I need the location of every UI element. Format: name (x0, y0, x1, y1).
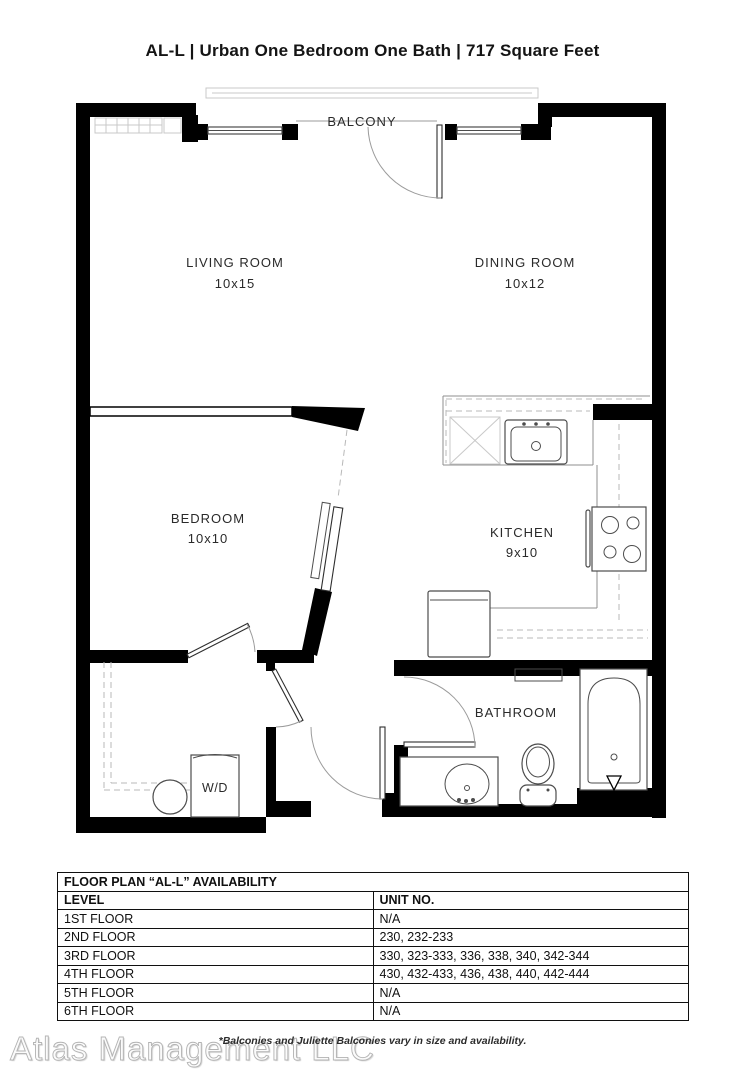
availability-table: FLOOR PLAN “AL-L” AVAILABILITY LEVEL UNI… (57, 872, 689, 1021)
svg-text:DINING ROOM: DINING ROOM (475, 255, 576, 270)
level-cell: 6TH FLOOR (58, 1002, 374, 1021)
table-row: 4TH FLOOR 430, 432-433, 436, 438, 440, 4… (58, 965, 689, 984)
table-row: 6TH FLOOR N/A (58, 1002, 689, 1021)
units-cell: 230, 232-233 (373, 928, 689, 947)
units-cell: 330, 323-333, 336, 338, 340, 342-344 (373, 947, 689, 966)
units-cell: 430, 432-433, 436, 438, 440, 442-444 (373, 965, 689, 984)
unit-header: UNIT NO. (373, 891, 689, 910)
level-cell: 1ST FLOOR (58, 910, 374, 929)
table-row: 3RD FLOOR 330, 323-333, 336, 338, 340, 3… (58, 947, 689, 966)
bathtub (580, 669, 647, 790)
balcony-railing (206, 88, 538, 98)
table-row: 1ST FLOOR N/A (58, 910, 689, 929)
units-cell: N/A (373, 984, 689, 1003)
pony-wall (90, 407, 292, 416)
svg-text:KITCHEN: KITCHEN (490, 525, 554, 540)
level-cell: 4TH FLOOR (58, 965, 374, 984)
baseboard-heater (95, 118, 181, 133)
table-row: 2ND FLOOR 230, 232-233 (58, 928, 689, 947)
flyer-page: AL-L | Urban One Bedroom One Bath | 717 … (0, 0, 745, 1080)
balcony-door (296, 121, 442, 198)
table-title: FLOOR PLAN “AL-L” AVAILABILITY (58, 873, 689, 892)
balcony-window-right (457, 127, 521, 134)
floor-plan: W/D (0, 0, 745, 860)
table-row: 5TH FLOOR N/A (58, 984, 689, 1003)
level-cell: 3RD FLOOR (58, 947, 374, 966)
level-cell: 5TH FLOOR (58, 984, 374, 1003)
toilet (520, 744, 556, 806)
svg-text:LIVING ROOM: LIVING ROOM (186, 255, 284, 270)
bathroom-door (404, 677, 475, 748)
disclaimer-note: *Balconies and Juliette Balconies vary i… (0, 1035, 745, 1047)
walls (76, 103, 666, 833)
refrigerator (428, 591, 490, 657)
svg-text:10x10: 10x10 (188, 531, 228, 546)
bedroom-door (187, 623, 255, 657)
bedroom-label: BEDROOM 10x10 (171, 511, 245, 546)
balcony-label: BALCONY (327, 114, 396, 129)
dining-room-label: DINING ROOM 10x12 (475, 255, 576, 291)
living-room-label: LIVING ROOM 10x15 (186, 255, 284, 291)
units-cell: N/A (373, 910, 689, 929)
washer-dryer: W/D (153, 755, 239, 818)
sliding-door (311, 430, 347, 591)
units-cell: N/A (373, 1002, 689, 1021)
bathroom-label: BATHROOM (475, 705, 557, 720)
hall-door (272, 669, 303, 727)
svg-text:9x10: 9x10 (506, 545, 538, 560)
level-header: LEVEL (58, 891, 374, 910)
vanity-sink (400, 757, 498, 806)
balcony-window-left (208, 127, 282, 134)
svg-text:10x12: 10x12 (505, 276, 545, 291)
entry-door (311, 727, 385, 799)
laundry-label: W/D (202, 781, 228, 795)
table-title-row: FLOOR PLAN “AL-L” AVAILABILITY (58, 873, 689, 892)
table-header-row: LEVEL UNIT NO. (58, 891, 689, 910)
kitchen-sink (505, 420, 567, 464)
svg-text:10x15: 10x15 (215, 276, 255, 291)
stove (586, 507, 646, 571)
svg-text:BEDROOM: BEDROOM (171, 511, 245, 526)
level-cell: 2ND FLOOR (58, 928, 374, 947)
kitchen-label: KITCHEN 9x10 (490, 525, 554, 560)
